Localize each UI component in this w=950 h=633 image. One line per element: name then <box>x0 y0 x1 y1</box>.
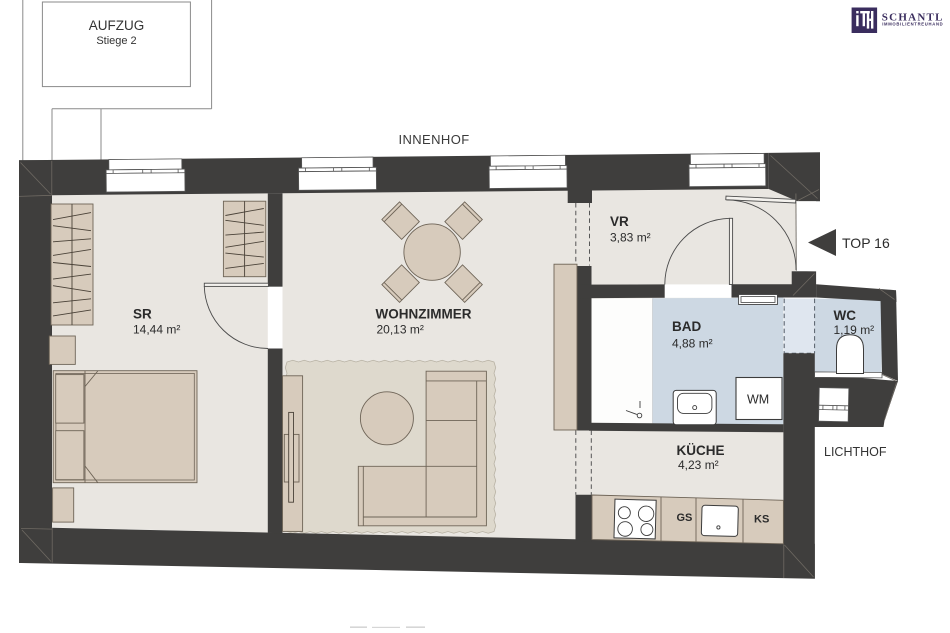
svg-text:SR: SR <box>133 307 152 322</box>
svg-text:WC: WC <box>834 308 857 323</box>
svg-text:TOP 16: TOP 16 <box>842 235 890 251</box>
svg-text:14,44 m²: 14,44 m² <box>133 323 180 337</box>
svg-text:WOHNZIMMER: WOHNZIMMER <box>376 307 472 322</box>
svg-text:3,83 m²: 3,83 m² <box>610 231 651 245</box>
svg-text:20,13 m²: 20,13 m² <box>377 323 424 337</box>
svg-text:KÜCHE: KÜCHE <box>677 443 725 458</box>
svg-text:GS: GS <box>677 512 693 524</box>
svg-text:4,88 m²: 4,88 m² <box>672 337 713 351</box>
svg-text:LICHTHOF: LICHTHOF <box>824 445 887 459</box>
svg-text:KS: KS <box>754 514 769 526</box>
svg-text:IMMOBILIENTREUHAND: IMMOBILIENTREUHAND <box>882 21 943 26</box>
svg-text:4,23 m²: 4,23 m² <box>678 458 719 472</box>
svg-text:INNENHOF: INNENHOF <box>398 132 469 147</box>
svg-text:AUFZUG: AUFZUG <box>89 18 145 33</box>
svg-text:Stiege 2: Stiege 2 <box>96 35 136 47</box>
svg-text:BAD: BAD <box>672 319 701 334</box>
svg-text:VR: VR <box>610 214 629 229</box>
svg-text:WM: WM <box>747 393 769 407</box>
